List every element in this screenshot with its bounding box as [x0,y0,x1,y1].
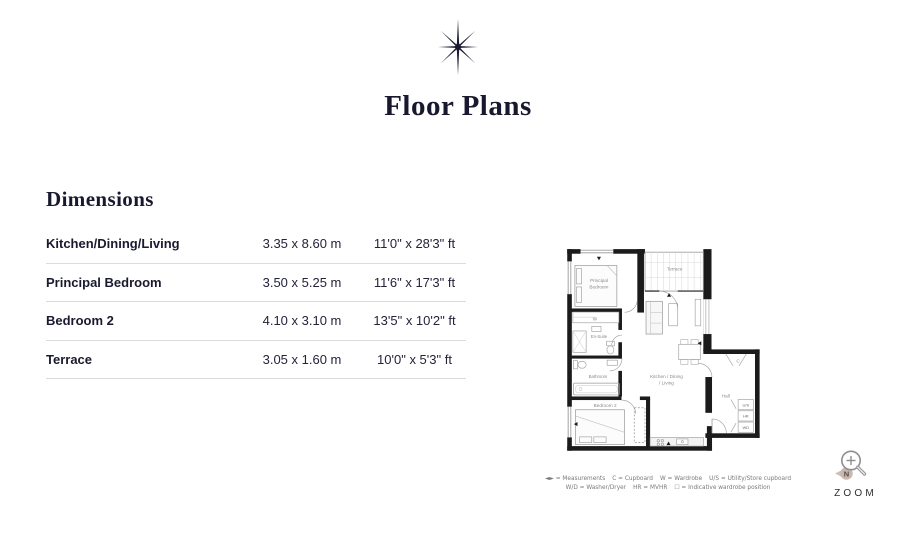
utility-store-label: U/S [742,402,749,407]
principal-bedroom-label: Principal [590,278,608,283]
legend-item: U/S = Utility/Store cupboard [709,476,791,482]
table-row: Bedroom 2 4.10 x 3.10 m 13'5" x 10'2" ft [46,302,466,341]
legend-item: ☐ = Indicative wardrobe position [674,485,770,491]
room-name: Kitchen/Dining/Living [46,236,241,251]
principal-bedroom-label2: Bedroom [589,285,608,290]
room-name: Terrace [46,352,241,367]
hall-label: Hall [722,393,730,398]
plan-kitchen-living: Kitchen / Dining / Living [646,299,703,446]
plan-ensuite: En-Suite [573,326,622,354]
legend-item: HR = MVHR [633,485,667,491]
bathroom-label: Bathroom [589,374,608,379]
imperial-dimensions: 13'5" x 10'2" ft [363,313,466,328]
plan-principal-bedroom: Principal Bedroom [575,265,637,312]
legend-item: W = Wardrobe [660,476,702,482]
table-row: Terrace 3.05 x 1.60 m 10'0" x 5'3" ft [46,341,466,380]
terrace-label: Terrace [667,267,683,272]
star-icon [429,14,487,80]
kitchen-label: Kitchen / Dining [650,374,683,379]
metric-dimensions: 4.10 x 3.10 m [241,313,363,328]
legend-item: ◄► = Measurements [545,476,605,482]
floorplan-drawing: Terrace Principal Bedroom W [562,244,772,464]
wardrobe-label: W [593,317,598,322]
plan-bathroom: Bathroom [573,359,622,395]
metric-dimensions: 3.50 x 5.25 m [241,275,363,290]
plan-legend: ◄► = Measurements C = Cupboard W = Wardr… [562,476,774,491]
washer-dryer-label: WD [742,425,749,430]
plan-wardrobe: W [573,312,619,323]
imperial-dimensions: 11'6" x 17'3" ft [363,275,466,290]
zoom-label: ZOOM [831,488,877,499]
page-title: Floor Plans [0,90,916,123]
heat-recovery-label: HR [743,414,749,419]
bedroom2-label: Bedroom 2 [594,403,617,408]
table-row: Kitchen/Dining/Living 3.35 x 8.60 m 11'0… [46,225,466,264]
legend-item: W/D = Washer/Dryer [566,485,626,491]
table-row: Principal Bedroom 3.50 x 5.25 m 11'6" x … [46,264,466,303]
floor-plans-page: Floor Plans Dimensions Kitchen/Dining/Li… [0,0,916,537]
legend-item: C = Cupboard [612,476,653,482]
metric-dimensions: 3.35 x 8.60 m [241,236,363,251]
ensuite-label: En-Suite [591,334,608,339]
floorplan-figure: Terrace Principal Bedroom W [562,244,774,491]
room-name: Bedroom 2 [46,313,241,328]
imperial-dimensions: 10'0" x 5'3" ft [363,352,466,367]
room-name: Principal Bedroom [46,275,241,290]
cupboard-label: C [736,359,740,364]
metric-dimensions: 3.05 x 1.60 m [241,352,363,367]
zoom-icon-group: N [832,449,876,487]
plan-terrace: Terrace [645,252,703,309]
svg-text:N: N [844,469,849,478]
dimensions-table: Kitchen/Dining/Living 3.35 x 8.60 m 11'0… [46,225,466,379]
plan-bedroom2: Bedroom 2 [575,400,645,445]
zoom-button[interactable]: N ZOOM [822,449,886,499]
imperial-dimensions: 11'0" x 28'3" ft [363,236,466,251]
dimensions-heading: Dimensions [46,187,154,212]
kitchen-label2: / Living [659,381,674,386]
